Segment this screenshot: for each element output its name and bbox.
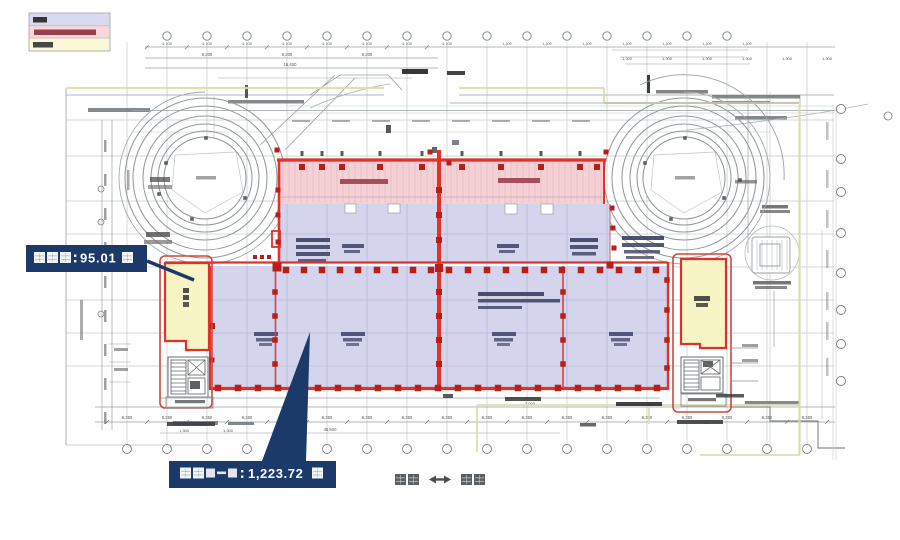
svg-text:1,300: 1,300 <box>582 42 592 46</box>
svg-text:1,300: 1,300 <box>822 56 833 61</box>
svg-text:8,250: 8,250 <box>522 415 533 420</box>
svg-text:4,100: 4,100 <box>242 41 253 46</box>
svg-text:8,250: 8,250 <box>682 415 693 420</box>
svg-text:95.01: 95.01 <box>80 251 117 266</box>
svg-text:1,300: 1,300 <box>742 56 753 61</box>
svg-text:1,300: 1,300 <box>223 428 234 433</box>
svg-text:8,250: 8,250 <box>202 415 213 420</box>
svg-text:8,250: 8,250 <box>242 415 253 420</box>
svg-text:1,300: 1,300 <box>742 42 752 46</box>
svg-text:8,250: 8,250 <box>482 415 493 420</box>
svg-text:8,200: 8,200 <box>282 52 293 57</box>
svg-text:1,300: 1,300 <box>542 42 552 46</box>
svg-text:8,250: 8,250 <box>722 415 733 420</box>
svg-text:8,250: 8,250 <box>802 415 813 420</box>
svg-text:1,300: 1,300 <box>702 56 713 61</box>
svg-text:8,250: 8,250 <box>442 415 453 420</box>
svg-text:1,300: 1,300 <box>502 42 512 46</box>
svg-text:1,300: 1,300 <box>662 56 673 61</box>
svg-text:8,250: 8,250 <box>322 415 333 420</box>
svg-text:4,100: 4,100 <box>442 41 453 46</box>
svg-text:4,100: 4,100 <box>362 41 373 46</box>
svg-text:8,250: 8,250 <box>402 415 413 420</box>
svg-text:1,300: 1,300 <box>782 56 793 61</box>
svg-text:4,100: 4,100 <box>322 41 333 46</box>
svg-text:8,250: 8,250 <box>122 415 133 420</box>
svg-text:1,300: 1,300 <box>662 42 672 46</box>
svg-text:1,300: 1,300 <box>179 428 190 433</box>
svg-text:8,200: 8,200 <box>362 52 373 57</box>
svg-text:1,300: 1,300 <box>622 56 633 61</box>
svg-text:8,250: 8,250 <box>602 415 613 420</box>
svg-text:45,500: 45,500 <box>324 427 337 432</box>
svg-text:1,300: 1,300 <box>622 42 632 46</box>
svg-text:1,223.72: 1,223.72 <box>248 466 303 481</box>
svg-text:1,300: 1,300 <box>702 42 712 46</box>
svg-text:8,200: 8,200 <box>202 52 213 57</box>
svg-text:4,100: 4,100 <box>202 41 213 46</box>
svg-text:4,100: 4,100 <box>402 41 413 46</box>
svg-text:4,100: 4,100 <box>282 41 293 46</box>
svg-text:4,100: 4,100 <box>162 41 173 46</box>
svg-text:8,250: 8,250 <box>642 415 653 420</box>
svg-text:8,250: 8,250 <box>162 415 173 420</box>
svg-text:8,250: 8,250 <box>562 415 573 420</box>
svg-text:8,250: 8,250 <box>362 415 373 420</box>
svg-text:16,400: 16,400 <box>284 62 297 67</box>
svg-text:8,250: 8,250 <box>762 415 773 420</box>
